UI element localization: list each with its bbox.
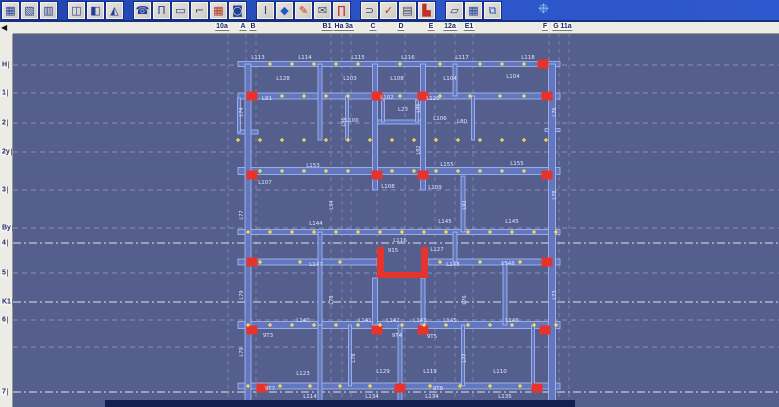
beam-label: L108 [381, 184, 395, 190]
toolbar-group: ☎Π▭⌐▦◙ [133, 1, 247, 20]
node-marker [423, 230, 424, 234]
beam-label: L148 [501, 261, 515, 267]
check-icon-button[interactable]: ✓ [379, 1, 398, 20]
node-marker [555, 230, 556, 234]
node-marker [325, 138, 326, 142]
gate-icon: ∏ [337, 5, 345, 16]
node-marker [479, 138, 480, 142]
node-marker [347, 94, 348, 98]
node-marker [325, 169, 326, 173]
row-axis-label: 2 [1, 120, 8, 127]
beam-label: L78 [329, 295, 335, 304]
node-marker [347, 169, 348, 173]
histogram-icon-button[interactable]: ▙ [417, 1, 436, 20]
undo-icon-button[interactable]: ⊃ [360, 1, 379, 20]
frame-plan-icon-button[interactable]: ◫ [67, 1, 86, 20]
row-axis-label: K1 [1, 299, 13, 306]
brick-wall-icon: ▦ [213, 5, 223, 16]
column-marker[interactable] [372, 171, 383, 180]
column-axis-label: 3a [344, 23, 354, 31]
beam-label: L146 [505, 318, 519, 324]
beam-label: L135 [498, 394, 512, 400]
toolbar: ▦▧▥◫◧◭☎Π▭⌐▦◙I◆✎✉∏⊃✓▤▙▱▦⧉❉ [0, 0, 779, 22]
beam-label: L155 [440, 162, 454, 168]
node-marker [469, 94, 470, 98]
node-marker [281, 169, 282, 173]
node-marker [511, 230, 512, 234]
grid-icon-button[interactable]: ▦ [464, 1, 483, 20]
row-axis-label: H [1, 62, 9, 69]
node-marker [379, 323, 380, 327]
diamond-icon: ◆ [280, 5, 288, 16]
node-marker [523, 138, 524, 142]
node-marker [479, 169, 480, 173]
node-marker [347, 138, 348, 142]
beam-label: L110 [493, 369, 507, 375]
spreadsheet-icon: ▦ [5, 5, 15, 16]
column-axis-label: D [397, 23, 404, 31]
node-marker [335, 62, 336, 66]
brick-wall-icon-button[interactable]: ▦ [209, 1, 228, 20]
beam-label: L78 [552, 190, 558, 199]
wall-section-icon: ◧ [90, 5, 100, 16]
marker-pen-icon-button[interactable]: ✎ [294, 1, 313, 20]
frame-plan-icon: ◫ [71, 5, 81, 16]
node-marker [313, 62, 314, 66]
layers-icon-button[interactable]: ⧉ [483, 1, 502, 20]
beam-label: L95 [416, 103, 422, 112]
beam-label: L145 [443, 318, 457, 324]
beam-label: L74 [239, 107, 245, 116]
beam-label: 9T7 [265, 386, 276, 392]
column-marker[interactable] [372, 326, 383, 335]
beam-label: 9T8 [433, 386, 444, 392]
node-marker [457, 169, 458, 173]
wall-segment[interactable] [453, 232, 457, 262]
grid-icon: ▦ [468, 5, 478, 16]
beam-label: L142 [386, 318, 400, 324]
node-marker [281, 138, 282, 142]
node-marker [303, 169, 304, 173]
beam-label: L129 [376, 369, 390, 375]
top-axis-ruler: 10aABB1Ha3aCDE12aE1FG11a [0, 22, 779, 34]
node-marker [269, 62, 270, 66]
column-axis-label: B1 [322, 23, 333, 31]
node-marker [269, 323, 270, 327]
node-marker [339, 260, 340, 264]
row-axis-label: 7 [1, 389, 8, 396]
beam-label: L145 [505, 219, 519, 225]
wall-section-icon-button[interactable]: ◧ [86, 1, 105, 20]
node-marker [457, 138, 458, 142]
beam-label: L134 [425, 394, 439, 400]
node-marker [479, 260, 480, 264]
node-marker [399, 62, 400, 66]
beam-label: 9T5 [427, 334, 438, 340]
column-axis-label: E [428, 23, 435, 31]
beam-label: L103 [343, 76, 357, 82]
column-axis-label: A [239, 23, 246, 31]
node-marker [259, 260, 260, 264]
envelope-icon-button[interactable]: ✉ [313, 1, 332, 20]
row-axis-label: 6 [1, 317, 8, 324]
elbow-tool-icon-button[interactable]: ⌐ [190, 1, 209, 20]
node-marker [445, 230, 446, 234]
beam-label: L127 [430, 247, 444, 253]
node-marker [299, 260, 300, 264]
beam-label: L145 [438, 219, 452, 225]
sketch-note-icon: ▱ [450, 5, 458, 16]
node-marker [247, 323, 248, 327]
wall-segment[interactable] [318, 325, 322, 401]
node-marker [519, 384, 520, 388]
beam-label: L106 [433, 116, 447, 122]
beam-label: L148 [446, 262, 460, 268]
node-marker [325, 94, 326, 98]
node-marker [259, 138, 260, 142]
column-marker[interactable] [542, 258, 553, 267]
row-axis-label: 4 [1, 240, 8, 247]
node-marker [269, 230, 270, 234]
beam-label: L109 [428, 185, 442, 191]
beam-label: L153 [306, 163, 320, 169]
column-marker[interactable] [542, 92, 553, 101]
node-marker [467, 230, 468, 234]
node-marker [439, 260, 440, 264]
beam-label: L100 [345, 118, 359, 124]
report-doc-icon: ▤ [402, 5, 412, 16]
report-doc-icon-button[interactable]: ▤ [398, 1, 417, 20]
node-marker [413, 169, 414, 173]
row-axis-label: 5 [1, 270, 8, 277]
node-marker [489, 384, 490, 388]
node-marker [357, 230, 358, 234]
node-marker [303, 94, 304, 98]
opening-tool-icon-button[interactable]: ◙ [228, 1, 247, 20]
node-marker [291, 323, 292, 327]
column-axis-label: Ha [334, 23, 345, 31]
node-marker [499, 94, 500, 98]
node-marker [501, 62, 502, 66]
beam-label: L102 [380, 95, 394, 101]
beam-label: L116 [401, 55, 415, 61]
beam-label: L140 [296, 318, 310, 324]
node-marker [501, 169, 502, 173]
node-marker [335, 323, 336, 327]
beam-label: L134 [365, 394, 379, 400]
sketch-note-icon-button[interactable]: ▱ [445, 1, 464, 20]
wall-segment[interactable] [382, 100, 385, 122]
node-marker [533, 230, 534, 234]
wall-segment[interactable] [503, 262, 507, 325]
beam-label: L128 [276, 76, 290, 82]
node-marker [369, 138, 370, 142]
beam-label: L113 [251, 55, 265, 61]
canvas-background [13, 33, 779, 407]
node-marker [357, 62, 358, 66]
wall-segment[interactable] [373, 278, 378, 325]
check-icon: ✓ [384, 5, 393, 16]
column-axis-label: C [369, 23, 376, 31]
node-marker [313, 323, 314, 327]
scroll-left-arrow-icon[interactable]: ◀ [0, 22, 13, 34]
beam-label: 915 [388, 248, 399, 254]
toolbar-group: ▦▧▥ [1, 1, 58, 20]
beam-label: L114 [303, 394, 317, 400]
node-marker [523, 62, 524, 66]
node-marker [247, 230, 248, 234]
node-marker [335, 230, 336, 234]
wall-segment[interactable] [532, 325, 535, 386]
row-axis-label: 1 [1, 90, 8, 97]
beam-label: L115 [351, 55, 365, 61]
envelope-icon: ✉ [318, 5, 327, 16]
beam-label: L118 [521, 55, 535, 61]
toolbar-group: ⊃✓▤▙ [360, 1, 436, 20]
node-marker [435, 169, 436, 173]
column-marker[interactable] [542, 171, 553, 180]
node-marker [533, 323, 534, 327]
node-marker [391, 169, 392, 173]
beam-label: L108 [390, 76, 404, 82]
column-axis-label: 12a [443, 23, 457, 31]
beam-label: L119 [423, 369, 437, 375]
beam-label: L94 [329, 200, 335, 209]
column-axis-label: F [542, 23, 548, 31]
toolbar-group: ◫◧◭ [67, 1, 124, 20]
column-marker[interactable] [532, 384, 543, 393]
node-marker [379, 230, 380, 234]
column-marker[interactable] [418, 171, 429, 180]
chart-doc-icon-button[interactable]: ▧ [20, 1, 39, 20]
beam-label: L92 [416, 145, 422, 154]
spreadsheet-icon-button[interactable]: ▦ [1, 1, 20, 20]
beam-label: L80 [457, 119, 468, 125]
handset-icon: ☎ [136, 5, 150, 16]
swirl-logo-icon: ❉ [538, 2, 549, 17]
node-marker [479, 62, 480, 66]
beam-label: L91 [262, 96, 272, 102]
node-marker [247, 384, 248, 388]
column-axis-label: B [249, 23, 256, 31]
column-marker[interactable] [540, 326, 551, 335]
row-axis-label: 2y [1, 149, 12, 156]
beam-label: L116 [393, 238, 407, 244]
beam-label: L126 [426, 96, 440, 102]
beam-label: L107 [258, 180, 272, 186]
layers-icon: ⧉ [489, 5, 497, 16]
beam-label: L144 [309, 221, 323, 227]
wall-segment[interactable] [472, 96, 475, 140]
node-marker [435, 138, 436, 142]
wall-segment[interactable] [238, 168, 560, 175]
node-marker [291, 62, 292, 66]
pillar-icon: I [264, 5, 267, 16]
beam-label: L78 [351, 353, 357, 362]
column-tool-icon-button[interactable]: Π [152, 1, 171, 20]
column-axis-label: E1 [464, 23, 475, 31]
beam-label: L96 [341, 117, 347, 126]
column-axis-label: 10a [215, 23, 229, 31]
beam-label: L79 [239, 290, 245, 299]
node-marker [237, 138, 238, 142]
toolbar-group: ▱▦⧉ [445, 1, 502, 20]
roof-slope-icon: ◭ [110, 5, 118, 16]
node-marker [291, 230, 292, 234]
row-axis-label: By [1, 225, 13, 232]
beam-tool-icon: ▭ [175, 5, 185, 16]
node-marker [313, 230, 314, 234]
roof-slope-icon-button[interactable]: ◭ [105, 1, 124, 20]
node-marker [519, 260, 520, 264]
beam-label: L155 [510, 161, 524, 167]
histogram-icon: ▙ [422, 5, 430, 16]
node-marker [369, 384, 370, 388]
column-tool-icon: Π [157, 5, 165, 16]
pillar-icon-button[interactable]: I [256, 1, 275, 20]
beam-label: L77 [239, 210, 245, 219]
diamond-icon-button[interactable]: ◆ [275, 1, 294, 20]
elbow-tool-icon: ⌐ [195, 5, 204, 16]
node-marker [489, 323, 490, 327]
column-marker[interactable] [395, 384, 406, 393]
node-marker [545, 138, 546, 142]
node-marker [555, 323, 556, 327]
gate-icon-button[interactable]: ∏ [332, 1, 351, 20]
wall-segment[interactable] [318, 64, 322, 140]
node-marker [501, 138, 502, 142]
node-marker [279, 384, 280, 388]
node-marker [309, 384, 310, 388]
node-marker [489, 230, 490, 234]
opening-tool-icon: ◙ [232, 5, 243, 16]
node-marker [459, 384, 460, 388]
beam-label: L92 [462, 200, 468, 209]
beam-label: L79 [239, 347, 245, 356]
node-marker [401, 323, 402, 327]
beam-tool-icon-button[interactable]: ▭ [171, 1, 190, 20]
clipboard-icon: ▥ [43, 5, 53, 16]
beam-label: L123 [296, 371, 310, 377]
wall-segment[interactable] [318, 232, 322, 325]
column-marker[interactable] [247, 92, 258, 101]
beam-label: L23 [398, 107, 409, 113]
toolbar-group: I◆✎✉∏ [256, 1, 351, 20]
node-marker [281, 94, 282, 98]
node-marker [523, 94, 524, 98]
beam-label: L143 [413, 318, 427, 324]
node-marker [399, 94, 400, 98]
column-marker[interactable] [538, 60, 549, 69]
cad-application-window: L113L114L115L116L117L118L128L103L108L104… [0, 0, 779, 407]
column-marker[interactable] [247, 171, 258, 180]
node-marker [391, 138, 392, 142]
chart-doc-icon: ▧ [24, 5, 34, 16]
beam-label: L73 [552, 290, 558, 299]
beam-label: 9T3 [263, 333, 274, 339]
bottom-dark-band [105, 400, 575, 407]
undo-icon: ⊃ [365, 5, 374, 16]
node-marker [467, 323, 468, 327]
node-marker [401, 230, 402, 234]
marker-pen-icon: ✎ [299, 5, 308, 16]
beam-label: L147 [309, 262, 323, 268]
node-marker [303, 138, 304, 142]
beam-label: L77 [462, 353, 468, 362]
beam-label: L141 [358, 318, 372, 324]
node-marker [439, 62, 440, 66]
drawing-canvas[interactable]: L113L114L115L116L117L118L128L103L108L104… [0, 0, 779, 407]
node-marker [429, 384, 430, 388]
column-axis-label: 11a [559, 23, 572, 31]
node-marker [339, 384, 340, 388]
beam-label: L104 [506, 74, 520, 80]
left-axis-ruler: H122y3By45K167 [0, 34, 13, 407]
row-axis-label: 3 [1, 187, 8, 194]
beam-label: L114 [298, 55, 312, 61]
beam-label: L104 [443, 76, 457, 82]
beam-label: L117 [455, 55, 469, 61]
clipboard-icon-button[interactable]: ▥ [39, 1, 58, 20]
node-marker [259, 169, 260, 173]
handset-icon-button[interactable]: ☎ [133, 1, 152, 20]
node-marker [523, 169, 524, 173]
node-marker [413, 138, 414, 142]
beam-label: L76 [462, 295, 468, 304]
column-marker[interactable] [247, 258, 258, 267]
beam-label: 9T4 [392, 333, 403, 339]
beam-label: L76 [552, 107, 558, 116]
